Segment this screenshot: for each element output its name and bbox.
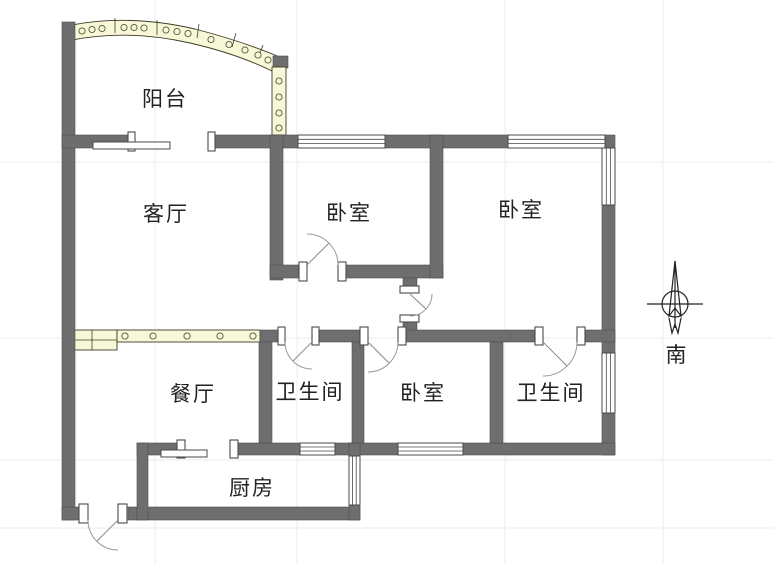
label-bedroom-top-middle: 卧室 [326,201,372,225]
label-bedroom-top-right: 卧室 [498,198,544,222]
label-balcony: 阳台 [142,87,188,111]
grid-lines [0,0,773,564]
label-compass-south: 南 [666,343,689,367]
door-bathroom-right [543,342,577,376]
window-kitchen-side [349,456,360,505]
window-bedroom-top-right [508,135,605,148]
label-bathroom-right: 卫生间 [517,381,586,405]
label-kitchen: 厨房 [229,476,275,500]
compass-icon [647,261,703,333]
balcony-railing [72,18,288,135]
door-bedroom-bottom [368,342,398,372]
kitchen-sliding-door [161,450,207,457]
window-bedroom-bottom [398,443,463,455]
door-bedroom-top-middle [307,234,338,265]
wall-outer-bottom [128,507,360,520]
door-bathroom-left [285,342,312,369]
label-bathroom-left: 卫生间 [276,380,345,404]
dining-bay-window [67,330,260,350]
label-bedroom-bottom: 卧室 [400,381,446,405]
wall-outer-left [62,22,75,520]
window-bathroom-left-bottom [300,443,335,455]
balcony-corner-post [273,56,288,68]
floor-plan: 阳台 客厅 卧室 卧室 餐厅 卫生间 卧室 卫生间 厨房 南 [0,0,773,564]
label-living-room: 客厅 [143,202,189,226]
window-bathroom-right-side [602,353,615,413]
label-dining-room: 餐厅 [170,382,216,406]
window-bedroom-right-side [602,148,615,205]
door-entry [88,520,118,550]
balcony-sliding-door [93,142,170,149]
floor-plan-drawing: 阳台 客厅 卧室 卧室 餐厅 卫生间 卧室 卫生间 厨房 南 [0,0,773,564]
window-bedroom-top-middle [298,135,385,148]
sliding-doors [93,142,207,457]
door-bedroom-top-right [410,294,432,316]
